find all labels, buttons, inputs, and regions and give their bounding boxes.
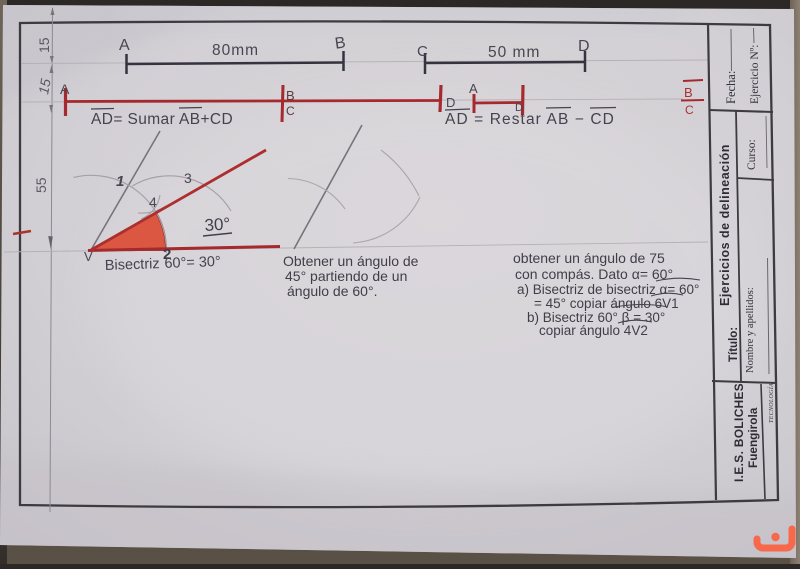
svg-text:30°: 30° [204, 214, 231, 235]
svg-text:Fuengirola: Fuengirola [746, 407, 760, 468]
svg-text:Ejercicio Nº:: Ejercicio Nº: [749, 45, 761, 104]
svg-text:con compás. Dato α= 60°: con compás. Dato α= 60° [515, 266, 673, 282]
svg-text:C: C [417, 43, 428, 60]
svg-text:a) Bisectriz de bisectriz α= 6: a) Bisectriz de bisectriz α= 60° [517, 282, 699, 297]
svg-text:Nombre y apellidos:: Nombre y apellidos: [745, 287, 756, 373]
svg-text:Obtener un ángulo de: Obtener un ángulo de [283, 253, 419, 269]
svg-text:A: A [119, 37, 130, 54]
svg-text:A: A [60, 81, 70, 97]
svg-text:Fecha:: Fecha: [724, 71, 738, 104]
svg-text:80mm: 80mm [212, 42, 259, 59]
svg-text:C: C [286, 104, 295, 118]
svg-text:4: 4 [149, 194, 157, 210]
svg-text:AD= Sumar AB+CD: AD= Sumar AB+CD [91, 111, 233, 128]
svg-text:obtener un ángulo de 75: obtener un ángulo de 75 [513, 250, 665, 266]
svg-text:3: 3 [184, 170, 192, 186]
svg-text:Título:: Título: [728, 327, 740, 362]
svg-text:ángulo de 60°.: ángulo de 60°. [287, 283, 377, 299]
svg-text:1: 1 [116, 173, 124, 190]
svg-text:15: 15 [36, 37, 52, 53]
svg-text:55: 55 [33, 177, 49, 193]
svg-text:15: 15 [35, 77, 53, 95]
svg-text:= 45° copiar ángulo 6V1: = 45° copiar ángulo 6V1 [534, 296, 679, 311]
svg-text:AD = Restar AB − CD: AD = Restar AB − CD [445, 111, 615, 128]
svg-text:50 mm: 50 mm [488, 44, 540, 61]
svg-text:45° partiendo de un: 45° partiendo de un [285, 268, 407, 284]
svg-text:I.E.S. BOLICHES: I.E.S. BOLICHES [732, 383, 746, 482]
svg-text:Ejercicios de delineación: Ejercicios de delineación [718, 144, 732, 306]
svg-text:D: D [446, 95, 455, 110]
svg-text:TECNOLOGÍA: TECNOLOGÍA [767, 383, 775, 423]
svg-text:copiar ángulo 4V2: copiar ángulo 4V2 [539, 323, 648, 338]
svg-text:V: V [84, 249, 93, 264]
svg-text:B: B [684, 85, 693, 100]
svg-text:A: A [469, 81, 478, 96]
svg-text:D: D [578, 38, 590, 55]
svg-text:Curso:: Curso: [746, 139, 758, 170]
svg-text:B: B [286, 88, 295, 103]
svg-text:C: C [685, 103, 694, 117]
